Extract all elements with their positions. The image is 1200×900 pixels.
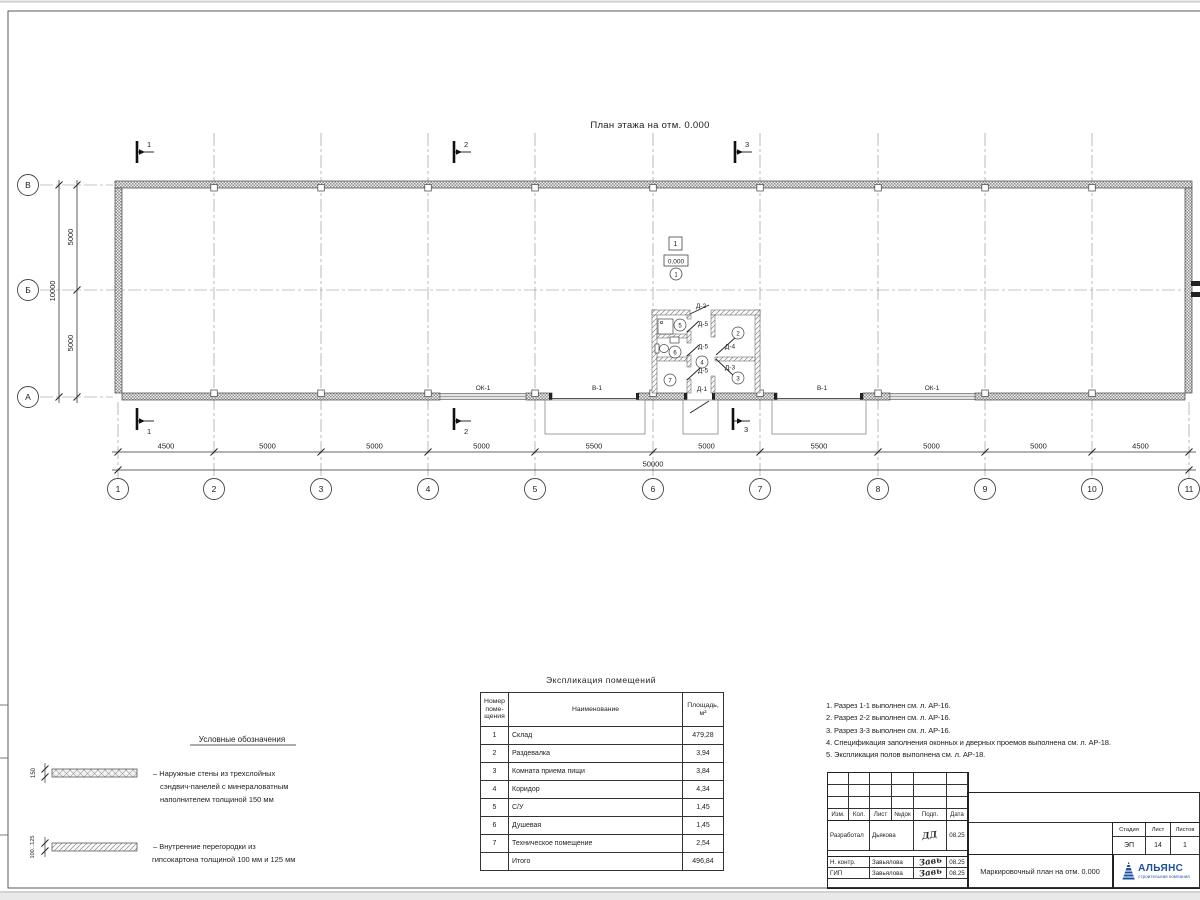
svg-text:наполнителем толщиной 150 мм: наполнителем толщиной 150 мм [160,795,274,804]
sheet-header: Лист [1146,823,1171,837]
elevation-value: 0.000 [668,259,685,266]
svg-text:2: 2 [464,427,468,436]
table-row: 3Комната приема пищи3,84 [481,763,724,781]
signature: Завь [914,857,947,868]
col-header-name: Наименование [509,693,683,727]
table-row: 6Душевая1,45 [481,817,724,835]
dimension-labels: 45005000 50005000 55005000 55005000 5000… [48,229,1149,469]
svg-text:5000: 5000 [66,229,75,246]
rev-header: Изм. [828,809,849,821]
grid-bubble-labels: 12 34 56 78 910 11 В Б А [25,180,1194,494]
svg-text:В: В [25,180,31,190]
svg-text:– Внутренние перегородки из: – Внутренние перегородки из [153,842,256,851]
note-line: 4. Спецификация заполнения оконных и две… [826,737,1194,749]
dimension-lines [59,180,1196,470]
svg-text:5: 5 [533,484,538,494]
shower-tray [658,319,673,334]
person-name: Завьялова [870,857,914,868]
svg-text:5000: 5000 [259,442,276,451]
role-label: Н. контр. [828,857,870,868]
svg-text:В-1: В-1 [592,385,603,392]
sheets-value: 1 [1171,837,1200,855]
legend-item-1: – Наружные стены из трехслойных сэндвич-… [153,769,288,804]
note-line: 3. Разрез 3-3 выполнен см. л. АР-16. [826,725,1194,737]
role-label: Разработал [828,821,870,851]
svg-text:В-1: В-1 [817,385,828,392]
sheets-header: Листов [1171,823,1200,837]
svg-text:Б: Б [25,285,31,295]
svg-text:5000: 5000 [1030,442,1047,451]
col-header-area: Площадь,м² [683,693,724,727]
opening-labels: ОК-1 ОК-1 В-1 В-1 Д-1 Д-2 Д-5 Д-5 Д-4 Д-… [476,303,940,393]
svg-text:Д-5: Д-5 [698,344,709,351]
svg-text:– Наружные стены из трехслойны: – Наружные стены из трехслойных [153,769,276,778]
svg-text:3: 3 [744,425,748,434]
svg-text:Д-3: Д-3 [725,365,736,372]
svg-text:1: 1 [147,427,151,436]
rev-header: Подп. [914,809,947,821]
svg-text:5000: 5000 [366,442,383,451]
col-header-number: Номерпоме-щения [481,693,509,727]
svg-text:Д-5: Д-5 [698,321,709,328]
svg-text:ОК-1: ОК-1 [925,385,940,392]
table-row-total: Итого496,84 [481,853,724,871]
svg-text:Д-4: Д-4 [725,344,736,351]
rev-header: Лист [870,809,892,821]
fold-marks [0,705,8,835]
rev-header: Дата [947,809,968,821]
svg-text:2: 2 [464,140,468,149]
signature: ДД [914,821,947,851]
svg-text:4500: 4500 [1132,442,1149,451]
note-line: 1. Разрез 1-1 выполнен см. л. АР-16. [826,700,1194,712]
date: 08.25 [947,857,968,868]
legend-title: Условные обозначения [199,735,285,744]
svg-text:4: 4 [426,484,431,494]
rev-header: Кол. [849,809,870,821]
person-name: Завьялова [870,868,914,879]
opening-jambs [549,281,1200,400]
table-row: 2Раздевалка3,94 [481,745,724,763]
svg-text:Д-5: Д-5 [698,368,709,375]
legend-item-2: – Внутренние перегородки из гипсокартона… [152,842,295,864]
svg-text:5500: 5500 [811,442,828,451]
table-row: 4Коридор4,34 [481,781,724,799]
svg-text:1: 1 [116,484,121,494]
svg-text:3: 3 [745,140,749,149]
plan-title: План этажа на отм. 0.000 [590,120,709,131]
table-row: 5С/У1,45 [481,799,724,817]
porches [545,400,866,434]
stage-header: Стадия [1113,823,1146,837]
table-row: 1Склад479,28 [481,727,724,745]
explication-title: Экспликация помещений [546,675,656,685]
legend-dim-1: 150 [31,767,37,778]
legend-dim-2: 100...125 [30,836,36,859]
svg-text:1: 1 [147,140,151,149]
title-block: Изм. Кол. Лист №док Подп. Дата Разработа… [828,773,1200,888]
notes-block: 1. Разрез 1-1 выполнен см. л. АР-16. 2. … [826,700,1194,761]
svg-text:ОК-1: ОК-1 [476,385,491,392]
dimension-ticks [56,182,1193,474]
room-1-number: 1 [674,273,678,279]
document-name: Маркировочный план на отм. 0.000 [968,855,1113,888]
svg-text:Д-1: Д-1 [697,386,708,393]
table-row: 7Техническое помещение2,54 [481,835,724,853]
svg-text:5000: 5000 [66,335,75,352]
note-line: 5. Экспликация полов выполнена см. л. АР… [826,749,1194,761]
svg-text:3: 3 [319,484,324,494]
window-symbols [440,394,975,400]
toilet-tank [655,344,659,353]
svg-text:8: 8 [876,484,881,494]
svg-text:5000: 5000 [473,442,490,451]
company-subtitle: строительная компания [1138,874,1190,879]
svg-text:сэндвич-панелей с минераловатн: сэндвич-панелей с минераловатным [160,782,288,791]
stage-value: ЭП [1113,837,1146,855]
svg-text:11: 11 [1185,484,1194,494]
svg-text:50000: 50000 [643,460,664,469]
svg-text:Д-2: Д-2 [696,303,707,310]
svg-text:5000: 5000 [923,442,940,451]
rev-header: №док [892,809,914,821]
svg-text:4500: 4500 [158,442,175,451]
svg-text:10000: 10000 [48,281,57,302]
sheet-value: 14 [1146,837,1171,855]
signature: Завь [914,868,947,879]
person-name: Дьякова [870,821,914,851]
floor-tag: 1 [674,241,678,248]
company-logo: АЛЬЯНС строительная компания [1113,855,1200,888]
svg-text:9: 9 [983,484,988,494]
company-name: АЛЬЯНС [1138,863,1190,874]
svg-text:2: 2 [212,484,217,494]
svg-text:гипсокартона толщиной 100 мм и: гипсокартона толщиной 100 мм и 125 мм [152,855,295,864]
note-line: 2. Разрез 2-2 выполнен см. л. АР-16. [826,712,1194,724]
svg-text:5000: 5000 [698,442,715,451]
sink [670,337,679,343]
svg-text:5500: 5500 [586,442,603,451]
svg-text:6: 6 [651,484,656,494]
role-label: ГИП [828,868,870,879]
toilet-bowl [660,345,669,353]
explication-table: Номерпоме-щения Наименование Площадь,м² … [480,692,724,871]
drawing-viewport: План этажа на отм. 0.000 12 34 56 78 910… [0,0,1200,900]
svg-text:А: А [25,392,31,402]
svg-text:10: 10 [1087,484,1097,494]
logo-triangle-icon [1122,862,1135,881]
date: 08.25 [947,868,968,879]
svg-text:7: 7 [758,484,763,494]
date: 08.25 [947,821,968,851]
